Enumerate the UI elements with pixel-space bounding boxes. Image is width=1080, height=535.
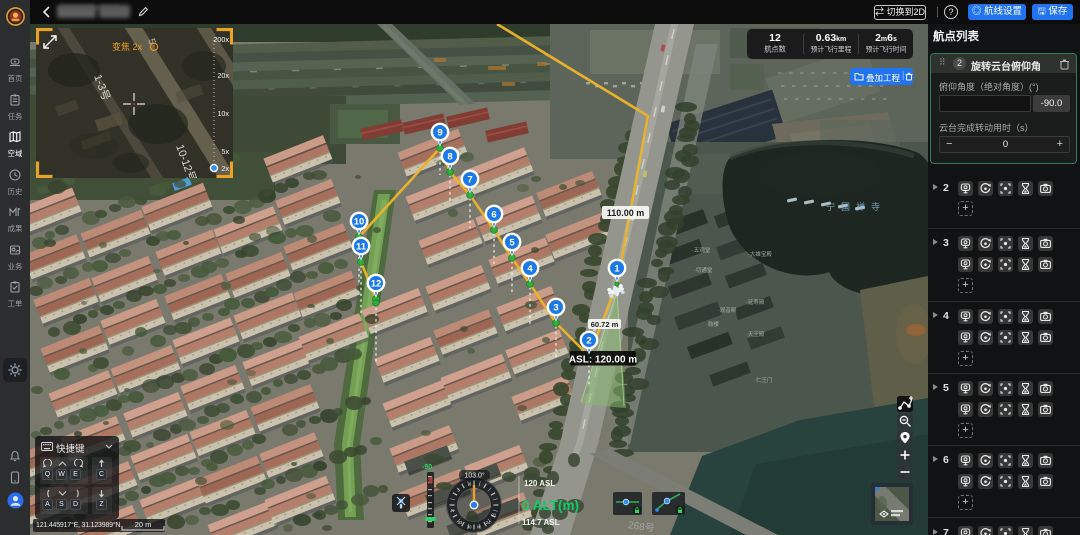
svg-text:10x: 10x: [217, 109, 229, 118]
svg-text:W: W: [477, 524, 481, 529]
svg-text:200x: 200x: [213, 35, 229, 44]
svg-text:114.7 ASL: 114.7 ASL: [522, 518, 560, 527]
svg-text:3: 3: [553, 302, 558, 313]
svg-text:10: 10: [354, 216, 365, 227]
svg-text:-90: -90: [422, 464, 432, 471]
svg-text:103.0°: 103.0°: [464, 472, 485, 480]
svg-text:8: 8: [447, 151, 452, 162]
svg-text:120 ASL: 120 ASL: [524, 479, 555, 488]
svg-text:20x: 20x: [217, 71, 229, 80]
svg-text:2x: 2x: [221, 164, 229, 173]
svg-text:33: 33: [458, 520, 463, 525]
svg-text:11: 11: [356, 241, 367, 252]
svg-text:60.72 m: 60.72 m: [591, 320, 619, 329]
svg-text:1: 1: [614, 263, 620, 274]
svg-text:变焦 2x: 变焦 2x: [112, 41, 143, 52]
svg-text:7: 7: [467, 174, 472, 185]
svg-text:21: 21: [492, 512, 497, 517]
svg-text:5: 5: [509, 237, 515, 248]
svg-text:6: 6: [491, 209, 496, 220]
svg-text:2: 2: [586, 335, 591, 346]
svg-text:4: 4: [527, 263, 533, 274]
svg-text:5x: 5x: [221, 147, 229, 156]
svg-text:12: 12: [371, 278, 382, 289]
svg-text:9: 9: [437, 127, 442, 138]
svg-text:110.00 m: 110.00 m: [607, 208, 645, 218]
svg-text:30: 30: [467, 524, 472, 529]
svg-text:ASL: 120.00 m: ASL: 120.00 m: [569, 355, 637, 366]
svg-text:N: N: [451, 508, 454, 513]
svg-text:24: 24: [486, 520, 491, 525]
svg-text:0 ALT(m): 0 ALT(m): [522, 498, 579, 513]
